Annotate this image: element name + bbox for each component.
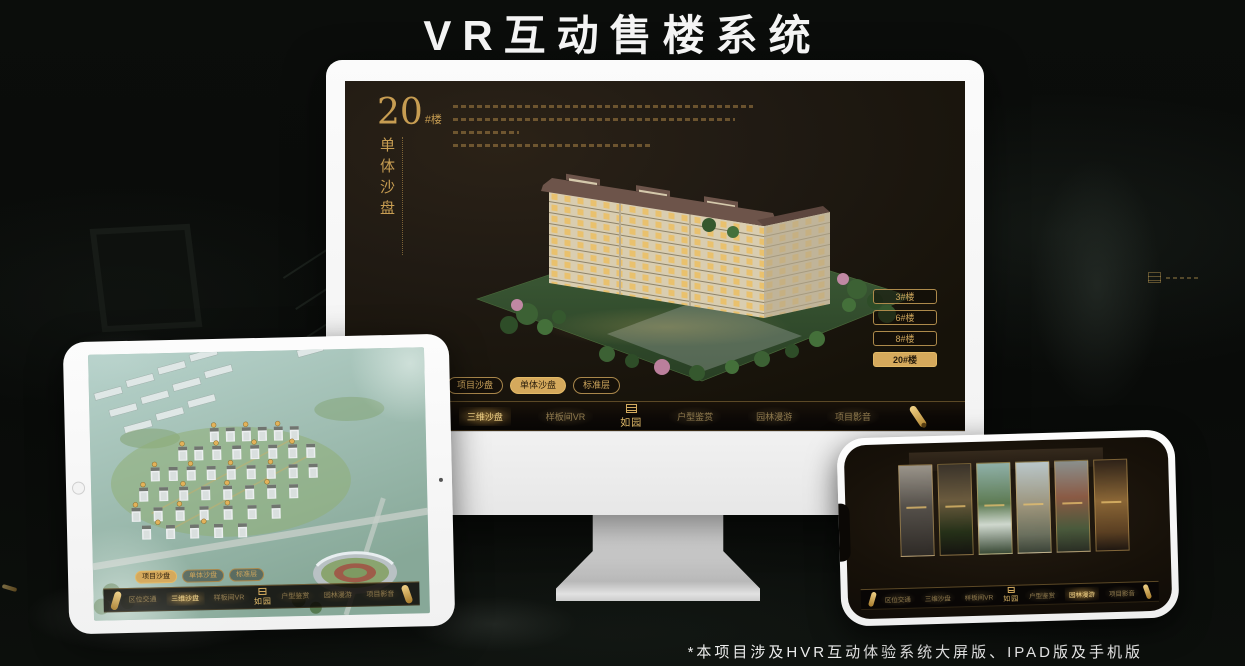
background-aerial-hint <box>1005 120 1235 420</box>
subnav-tab[interactable]: 项目沙盘 <box>447 377 503 394</box>
scene-panel[interactable] <box>937 463 974 556</box>
nav-item[interactable]: 区位交通 <box>123 592 161 607</box>
camera-icon <box>439 478 443 482</box>
nav-item[interactable]: 样板间VR <box>960 589 997 604</box>
floor-button[interactable]: 3#楼 <box>873 289 937 304</box>
building-info-panel: 20 #楼 单体沙盘 <box>377 95 442 255</box>
ipad-device: 项目沙盘 单体沙盘 标准层 区位交通 三维沙盘 样板间VR 如园 户型鉴赏 园林… <box>63 334 456 635</box>
floor-button[interactable]: 8#楼 <box>873 331 937 346</box>
phone-navbar: 区位交通 三维沙盘 样板间VR 如园 户型鉴赏 园林漫游 项目影音 <box>861 581 1159 610</box>
nav-item[interactable]: 项目影音 <box>361 587 399 602</box>
scroll-handle-icon[interactable] <box>1142 584 1152 600</box>
ipad-screen: 项目沙盘 单体沙盘 标准层 区位交通 三维沙盘 样板间VR 如园 户型鉴赏 园林… <box>88 347 430 621</box>
nav-item[interactable]: 项目影音 <box>827 407 879 426</box>
panel-vertical-title: 单体沙盘 <box>377 137 403 255</box>
floor-button[interactable]: 6#楼 <box>873 310 937 325</box>
phone-notch <box>838 503 851 561</box>
subnav-tab-selected[interactable]: 项目沙盘 <box>135 570 177 584</box>
scroll-handle-icon[interactable] <box>401 584 414 604</box>
scene-panel[interactable] <box>898 464 935 557</box>
scene-panel[interactable] <box>1093 459 1130 552</box>
home-button-icon[interactable] <box>72 481 85 494</box>
brand-logo: 如园 <box>620 404 642 429</box>
brand-logo-text: 如园 <box>254 595 272 606</box>
scroll-icon[interactable] <box>908 404 927 428</box>
nav-item[interactable]: 户型鉴赏 <box>1025 587 1059 602</box>
phone-screen: 区位交通 三维沙盘 样板间VR 如园 户型鉴赏 园林漫游 项目影音 <box>844 437 1173 620</box>
nav-item[interactable]: 样板间VR <box>538 407 594 426</box>
seal-icon <box>626 404 637 413</box>
nav-item-selected[interactable]: 三维沙盘 <box>459 407 511 426</box>
scene-panel[interactable] <box>1054 460 1091 553</box>
brand-logo-text: 如园 <box>620 414 642 429</box>
scroll-handle-icon[interactable] <box>110 590 122 610</box>
building-render <box>457 129 929 391</box>
footer-note: *本项目涉及HVR互动体验系统大屏版、IPAD版及手机版 <box>688 641 1143 662</box>
phone-device: 区位交通 三维沙盘 样板间VR 如园 户型鉴赏 园林漫游 项目影音 <box>836 429 1179 626</box>
scene-panel[interactable] <box>1015 461 1052 554</box>
seal-icon <box>1007 587 1014 593</box>
monitor-subnav: 项目沙盘 单体沙盘 标准层 <box>447 377 620 394</box>
brand-logo: 如园 <box>254 587 272 606</box>
floor-button-selected[interactable]: 20#楼 <box>873 352 937 367</box>
nav-item[interactable]: 三维沙盘 <box>921 590 955 605</box>
nav-item-selected[interactable]: 园林漫游 <box>1065 586 1099 601</box>
scene-gallery <box>898 459 1129 557</box>
page-title: VR互动售楼系统 <box>0 2 1245 63</box>
nav-item[interactable]: 户型鉴赏 <box>276 589 314 604</box>
background-text-hint <box>1166 277 1200 279</box>
floor-button-group: 3#楼 6#楼 8#楼 20#楼 <box>873 289 937 367</box>
scroll-handle-icon[interactable] <box>868 591 877 607</box>
nav-item[interactable]: 项目影音 <box>1105 585 1139 600</box>
nav-item[interactable]: 户型鉴赏 <box>669 407 721 426</box>
brand-logo: 如园 <box>1003 587 1019 604</box>
subnav-tab[interactable]: 标准层 <box>573 377 620 394</box>
building-number: 20 <box>377 95 423 131</box>
seal-icon <box>259 587 267 594</box>
subnav-tab[interactable]: 单体沙盘 <box>182 569 224 583</box>
building-number-suffix: #楼 <box>425 111 442 127</box>
nav-item[interactable]: 园林漫游 <box>748 407 800 426</box>
brand-logo-text: 如园 <box>1003 594 1019 604</box>
subnav-tab[interactable]: 标准层 <box>229 568 264 582</box>
nav-item-selected[interactable]: 三维沙盘 <box>166 591 204 606</box>
nav-item[interactable]: 区位交通 <box>881 591 915 606</box>
subnav-tab-selected[interactable]: 单体沙盘 <box>510 377 566 394</box>
nav-item[interactable]: 园林漫游 <box>319 588 357 603</box>
nav-item[interactable]: 样板间VR <box>208 590 249 605</box>
scene-panel[interactable] <box>976 462 1013 555</box>
background-sign-board <box>90 224 203 332</box>
background-seal-icon <box>1148 272 1161 283</box>
